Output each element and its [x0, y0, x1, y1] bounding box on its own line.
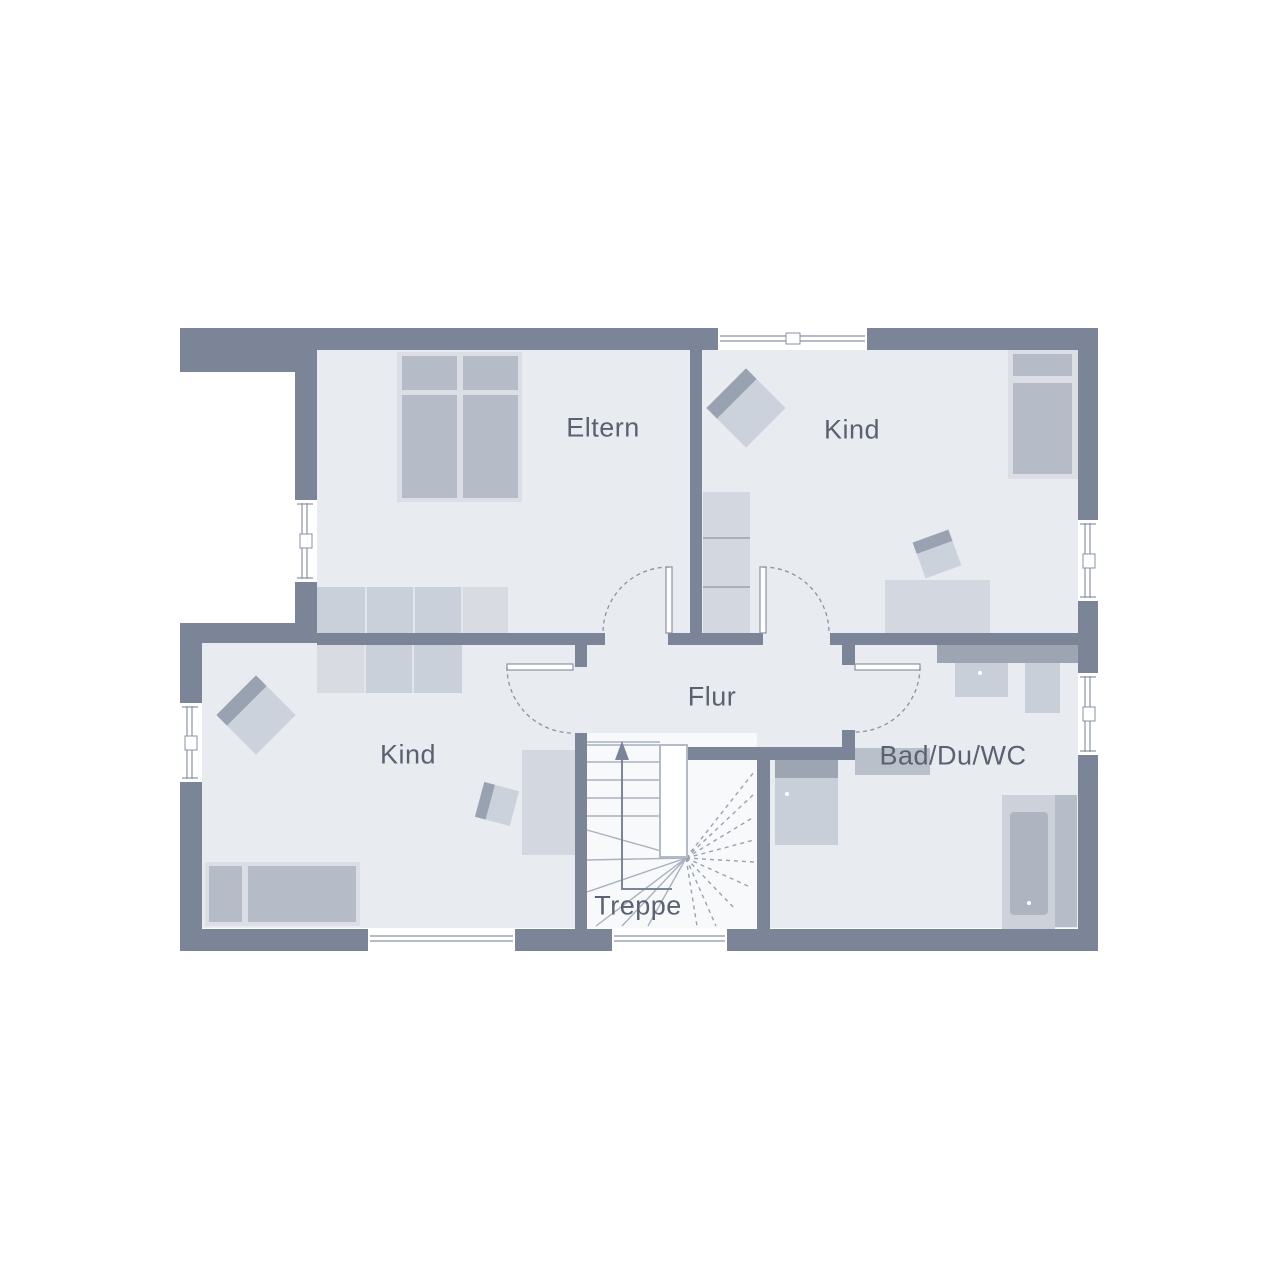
room-label-bad: Bad/Du/WC [879, 741, 1026, 772]
bed-mattress [463, 395, 518, 498]
wardrobe-segment [317, 645, 366, 693]
wardrobe-segment [367, 587, 415, 633]
floorplan-canvas: Eltern Kind Kind Flur Bad/Du/WC Treppe [0, 0, 1280, 1280]
desk [522, 750, 575, 855]
room-label-treppe: Treppe [594, 891, 682, 922]
wall-bottom [180, 929, 1098, 951]
wall-eltern-south [317, 633, 605, 645]
washing-machine [775, 760, 838, 845]
desk [885, 580, 990, 633]
wall-stub-kind-door [575, 643, 587, 667]
bed-mattress [402, 395, 457, 498]
bed-mattress [1013, 383, 1072, 474]
tall-cabinet [703, 492, 750, 633]
wall-top [295, 328, 1098, 350]
wall-bad-north [830, 633, 1078, 645]
wardrobe-kind [317, 645, 462, 693]
bathtub-drain [1027, 901, 1031, 905]
room-label-kind-top: Kind [824, 415, 880, 446]
bed-pillow [1013, 354, 1072, 376]
wardrobe-eltern [317, 587, 508, 633]
wall-bad-door-north [842, 645, 855, 665]
room-label-flur: Flur [688, 682, 737, 713]
bed-pillow [209, 866, 242, 922]
wall-right [1078, 328, 1098, 950]
wardrobe-segment [414, 645, 462, 693]
wall-between-doors [668, 633, 763, 645]
wardrobe-segment [366, 645, 414, 693]
washbasin [955, 663, 1008, 697]
wall-stairwell-east [757, 747, 770, 929]
room-label-kind-bottom: Kind [380, 740, 436, 771]
wall-bad-door-south [842, 730, 855, 760]
bathtub-ledge [1055, 795, 1077, 927]
bed-pillow [402, 356, 457, 390]
wall-top-left-block [180, 328, 295, 372]
wardrobe-segment [463, 587, 508, 633]
wall-jog [180, 623, 317, 643]
wall-eltern-kind-divider [690, 350, 702, 633]
bed-mattress [248, 866, 356, 922]
room-label-eltern: Eltern [566, 413, 640, 444]
wall-stairwell-west [575, 733, 587, 929]
wall-left-lower [180, 643, 202, 929]
bed-pillow [463, 356, 518, 390]
vanity-counter [937, 645, 1078, 663]
bathtub [1002, 795, 1055, 930]
wall-left-upper [295, 350, 317, 643]
wardrobe-segment [317, 587, 367, 633]
bathtub-basin [1010, 812, 1048, 915]
wc [1025, 663, 1060, 713]
wardrobe-segment [415, 587, 463, 633]
